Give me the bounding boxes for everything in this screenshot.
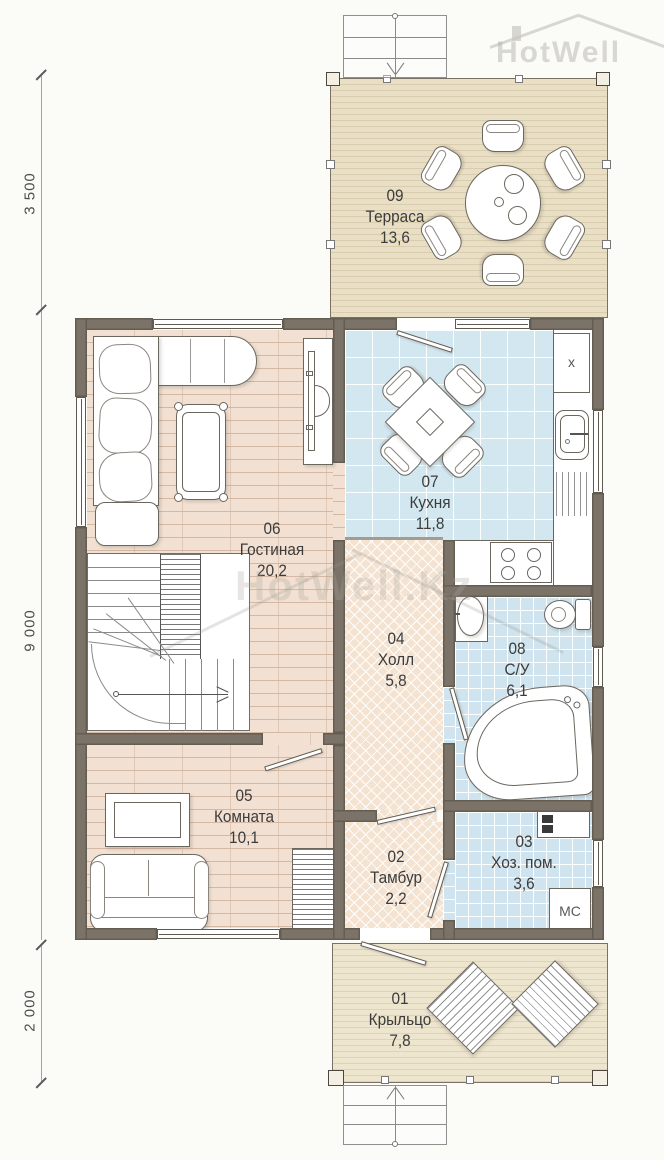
room-area: 7,8: [342, 1031, 457, 1052]
stair-tread-v: [233, 659, 234, 731]
terrace-chair: [482, 120, 524, 152]
wall-tambour-utility: [443, 920, 455, 940]
dimension-label-porch: 2 000: [22, 966, 39, 1056]
stove: [490, 542, 552, 583]
room-label-terrace: 09 Терраса 13,6: [337, 186, 452, 249]
table-leg: [174, 493, 183, 502]
tv-speaker: [315, 385, 330, 417]
sofa-cushion-line: [148, 860, 149, 896]
living-hall-passage-floor: [333, 463, 345, 540]
tv-screen: [308, 351, 315, 451]
sofa-pillow: [98, 451, 154, 504]
window-room05-bottom: [157, 929, 280, 939]
burner: [501, 548, 515, 562]
step-dot: [392, 13, 398, 19]
bath-faucet: [573, 701, 580, 708]
corner-bath-basin: [473, 698, 579, 789]
dimension-label-house: 9 000: [22, 586, 39, 676]
sofa-seam: [190, 339, 191, 383]
room-label-hall: 04 Холл 5,8: [338, 629, 453, 692]
stair-tread: [88, 619, 160, 620]
room-name: Терраса: [337, 207, 452, 228]
fridge-cabinet: x: [553, 333, 590, 393]
room-name: Гостиная: [214, 540, 329, 561]
burner: [501, 566, 515, 580]
toilet-bowl: [544, 600, 576, 629]
step-arrow: [395, 1088, 404, 1100]
kitchen-hall-divider: [345, 537, 443, 540]
x-mark: x: [554, 354, 589, 370]
terrace-post-small: [602, 240, 611, 249]
room-label-utility: 03 Хоз. пом. 3,6: [466, 832, 581, 895]
stair-arrow-head: [216, 696, 228, 703]
terrace-post-small: [326, 160, 335, 169]
porch-edge-square: [551, 1076, 559, 1084]
room-area: 13,6: [337, 228, 452, 249]
room-area: 6,1: [459, 681, 574, 702]
drying-rack: [556, 472, 588, 516]
window-living-left: [76, 397, 86, 527]
room-name: Крыльцо: [342, 1010, 457, 1031]
room-name: Комната: [186, 807, 301, 828]
room-name: С/У: [459, 660, 574, 681]
sofa-seat-line: [96, 897, 202, 898]
room-number: 02: [338, 847, 453, 868]
room-area: 3,6: [466, 874, 581, 895]
burner: [527, 566, 541, 580]
wall-right: [592, 493, 604, 647]
boiler-vent: [542, 815, 553, 823]
room-area: 5,8: [338, 671, 453, 692]
kitchen-sink: [555, 410, 589, 460]
coffee-table: [176, 404, 226, 500]
porch-edge-square: [381, 1076, 389, 1084]
wall-left: [75, 318, 87, 397]
tv-unit: [303, 338, 333, 465]
window-bathroom-right: [593, 647, 603, 687]
room-number: 04: [338, 629, 453, 650]
porch-steps: [343, 1085, 447, 1145]
stair-direction-line: [118, 694, 228, 695]
floor-plan-canvas: x: [0, 0, 664, 1160]
room-number: 03: [466, 832, 581, 853]
wall-right: [592, 318, 604, 410]
step-dot: [392, 1141, 398, 1147]
wall-bath-utility: [443, 800, 592, 812]
porch-post: [592, 1070, 608, 1086]
room-label-kitchen: 07 Кухня 11,8: [372, 472, 487, 535]
room-name: Хоз. пом.: [466, 853, 581, 874]
wall-living-room05: [323, 733, 345, 745]
small-sofa: [90, 854, 208, 932]
stair-tread: [88, 567, 160, 568]
sofa-seam: [224, 339, 225, 383]
dimension-line-porch: [41, 945, 42, 1083]
terrace-plate: [504, 174, 524, 194]
wall-picture-inner: [114, 802, 181, 838]
wall-living-kitchen: [333, 318, 345, 463]
wall-room-tambour: [333, 745, 345, 940]
terrace-plate: [508, 206, 527, 225]
terrace-steps: [343, 15, 447, 78]
sofa-armrest: [95, 502, 159, 546]
wall-picture: [105, 793, 190, 847]
sofa-arm: [90, 861, 105, 919]
dimension-line-terrace: [41, 75, 42, 310]
wall-bottom: [280, 928, 360, 940]
wall-hall-tambour: [333, 810, 377, 822]
window-living-top: [153, 319, 283, 329]
stair-tread: [88, 580, 160, 581]
stair-tread: [88, 593, 160, 594]
terrace-post-small: [602, 160, 611, 169]
terrace-plate-small: [494, 197, 504, 207]
toilet-tank: [575, 599, 591, 630]
wall-bottom: [430, 928, 604, 940]
room-label-room05: 05 Комната 10,1: [186, 786, 301, 849]
washing-machine-label: МС: [550, 903, 590, 919]
room-number: 07: [372, 472, 487, 493]
sofa-skirt-line: [96, 917, 202, 918]
room-name: Тамбур: [338, 868, 453, 889]
room-label-tambour: 02 Тамбур 2,2: [338, 847, 453, 910]
kitchen-faucet: [570, 433, 588, 435]
door-gap-terrace: [397, 318, 455, 330]
table-leg: [219, 402, 228, 411]
coffee-table-inner: [182, 412, 220, 492]
watermark-logo-text: HotWell: [496, 36, 621, 70]
window-kitchen-right: [593, 410, 603, 493]
wall-living-room05: [75, 733, 263, 745]
porch-edge-square: [466, 1076, 474, 1084]
door-gap-room05: [263, 733, 323, 745]
burner: [527, 548, 541, 562]
wall-bottom: [75, 928, 157, 940]
table-leg: [174, 402, 183, 411]
sofa-arm: [194, 861, 209, 919]
room-number: 06: [214, 519, 329, 540]
terrace-post: [326, 72, 340, 86]
toilet-bowl-inner: [551, 607, 566, 622]
tv-shelf-knob: [306, 425, 313, 430]
stair-tread: [88, 632, 160, 633]
room-number: 01: [342, 989, 457, 1010]
window-kitchen-top: [455, 319, 530, 329]
room-area: 10,1: [186, 828, 301, 849]
room-area: 11,8: [372, 514, 487, 535]
stair-arrow-head: [216, 686, 228, 693]
wardrobe: [292, 848, 334, 930]
table-leg: [219, 493, 228, 502]
porch-post: [328, 1070, 344, 1086]
tv-shelf-knob: [306, 371, 313, 376]
terrace-chair: [482, 254, 524, 286]
dimension-label-terrace: 3 500: [22, 149, 39, 239]
stair-start-dot: [113, 691, 119, 697]
terrace-table: [465, 165, 541, 241]
stair-arc: [91, 644, 186, 724]
terrace-post-small: [326, 240, 335, 249]
room-area: 2,2: [338, 889, 453, 910]
watermark-logo: HotWell: [482, 10, 662, 78]
dimension-line-house: [41, 310, 42, 940]
sofa-pillow: [98, 397, 154, 456]
room-number: 09: [337, 186, 452, 207]
stair-tread: [88, 606, 160, 607]
wall-right: [592, 687, 604, 840]
door-gap-porch: [360, 928, 430, 940]
wall-right: [592, 887, 604, 940]
step-center-line: [395, 16, 396, 77]
watermark-center-text: HotWell.Kz: [235, 562, 474, 610]
kitchen-sink-drain: [565, 439, 570, 444]
sofa-pillow: [98, 343, 152, 395]
step-arrow: [395, 63, 404, 75]
room-name: Кухня: [372, 493, 487, 514]
room-name: Холл: [338, 650, 453, 671]
window-utility-right: [593, 840, 603, 887]
room-number: 05: [186, 786, 301, 807]
room-label-porch: 01 Крыльцо 7,8: [342, 989, 457, 1052]
kitchen-table-center: [416, 408, 444, 436]
step-center-line: [395, 1086, 396, 1144]
